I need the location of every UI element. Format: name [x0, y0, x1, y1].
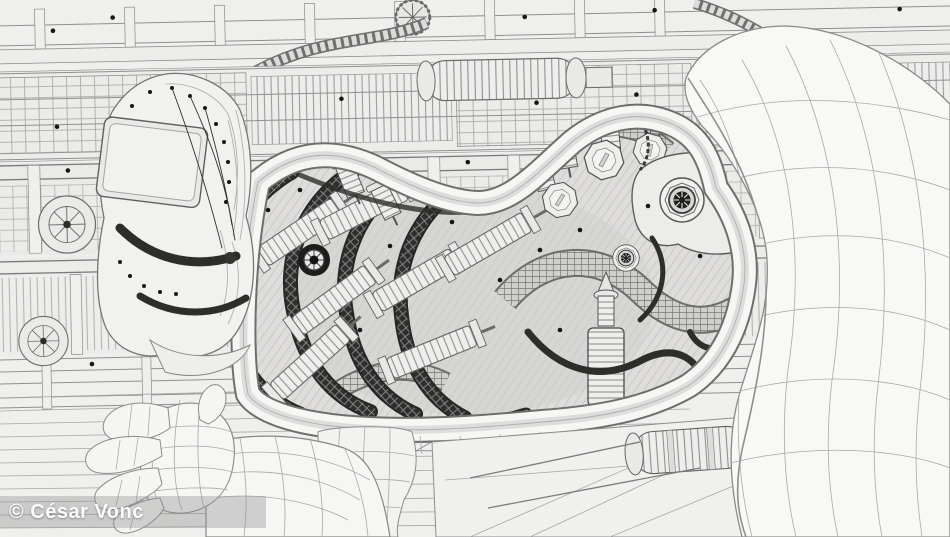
pulley-eye-left	[660, 178, 704, 222]
robot-head	[95, 73, 253, 375]
artwork-canvas: © César Vonc	[0, 0, 950, 537]
watermark: © César Vonc	[0, 496, 266, 528]
chest-hub	[298, 244, 330, 276]
wireframe-render	[0, 0, 950, 537]
credit-text: © César Vonc	[0, 501, 144, 524]
head-visor	[95, 116, 208, 208]
